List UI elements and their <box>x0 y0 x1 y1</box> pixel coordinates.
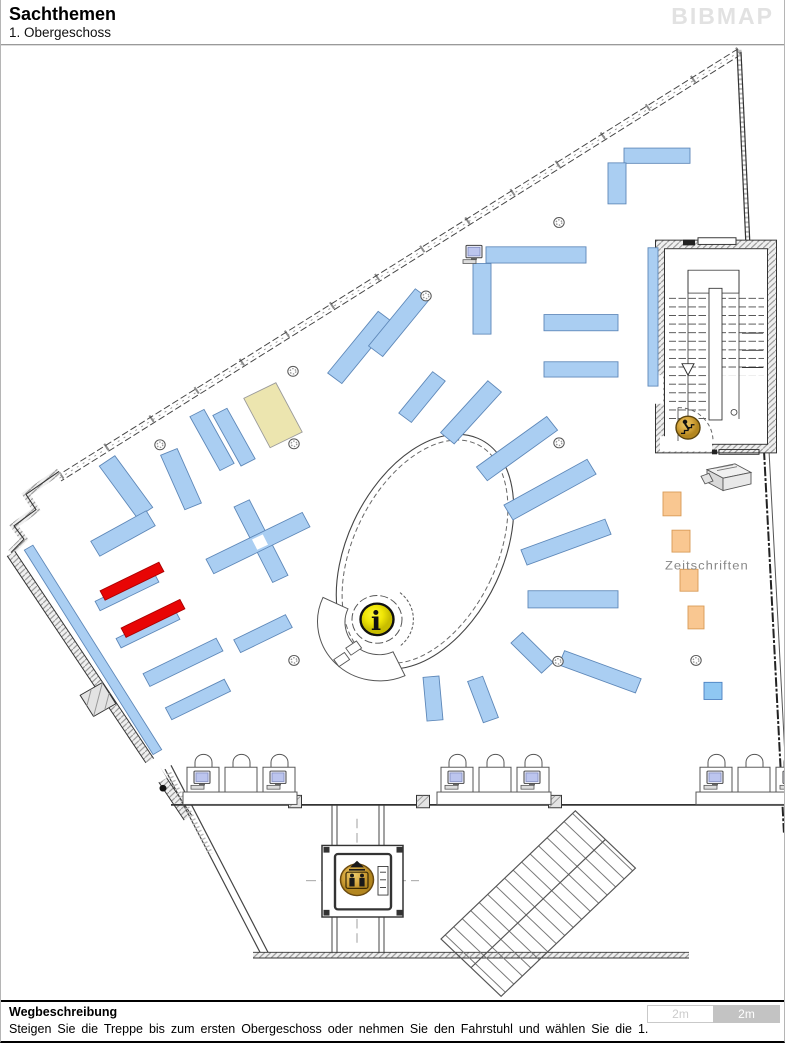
footer: Wegbeschreibung Steigen Sie die Treppe b… <box>1 1000 784 1043</box>
shelf[interactable] <box>559 651 641 693</box>
shelf[interactable] <box>521 519 611 565</box>
column <box>155 440 165 450</box>
floor-plan-map[interactable]: i <box>1 46 785 1000</box>
shelf[interactable] <box>399 372 445 423</box>
chair-icon <box>271 754 288 767</box>
column <box>554 218 564 228</box>
column <box>289 439 299 449</box>
shelf[interactable] <box>161 449 202 510</box>
desk <box>479 767 511 792</box>
chair-icon <box>525 754 542 767</box>
bibmap-logo: BIBMAP <box>671 3 774 30</box>
info-kiosk <box>318 593 414 681</box>
stairs-icon[interactable] <box>676 416 700 439</box>
shelf[interactable] <box>143 638 223 686</box>
chair-icon <box>487 754 504 767</box>
shelf[interactable] <box>244 383 302 448</box>
shelf[interactable] <box>468 676 499 722</box>
photocopier-icon <box>701 464 751 491</box>
computer-workstation[interactable] <box>183 754 297 804</box>
shelf[interactable] <box>544 362 618 377</box>
floor-plan-container[interactable]: i <box>1 46 785 1000</box>
chair-icon <box>708 754 725 767</box>
column <box>554 438 564 448</box>
shelf[interactable] <box>486 247 586 263</box>
shelf[interactable] <box>504 459 596 520</box>
floor-label: 1. Obergeschoss <box>9 25 111 40</box>
shelf[interactable] <box>672 530 690 552</box>
info-letter: i <box>371 606 381 636</box>
column <box>691 655 701 665</box>
zeitschriften-label: Zeitschriften <box>665 559 749 573</box>
shelf[interactable] <box>608 163 626 204</box>
shelf[interactable] <box>165 679 230 719</box>
shelf[interactable] <box>91 511 155 556</box>
info-icon[interactable]: i <box>361 604 394 637</box>
desk <box>225 767 257 792</box>
shelf[interactable] <box>234 615 292 653</box>
chair-icon <box>195 754 212 767</box>
shelf[interactable] <box>441 381 502 444</box>
stairwell <box>651 238 777 455</box>
computer-workstation[interactable] <box>696 754 785 804</box>
shelf[interactable] <box>624 148 690 163</box>
shelf[interactable] <box>473 264 491 335</box>
computer-workstation[interactable] <box>437 754 551 804</box>
header: Sachthemen 1. Obergeschoss <box>1 0 784 45</box>
shelf[interactable] <box>688 606 704 629</box>
shelf[interactable] <box>476 416 557 480</box>
shelf[interactable] <box>663 492 681 516</box>
directions-text: Steigen Sie die Treppe bis zum ersten Ob… <box>9 1022 648 1036</box>
column <box>421 291 431 301</box>
shelf[interactable] <box>511 632 553 673</box>
map-scale: 2m2m <box>647 1005 781 1023</box>
chair-icon <box>746 754 763 767</box>
diagonal-staircase <box>441 811 635 997</box>
chair-icon <box>233 754 250 767</box>
directions-heading: Wegbeschreibung <box>9 1005 117 1019</box>
shelf[interactable] <box>648 248 658 386</box>
column <box>553 656 563 666</box>
column <box>289 655 299 665</box>
shelf[interactable] <box>99 456 152 518</box>
shelf[interactable] <box>528 591 618 608</box>
bibmap-page: Sachthemen 1. Obergeschoss BIBMAP <box>0 0 785 1043</box>
scale-segment-dark: 2m <box>713 1005 780 1023</box>
shelf[interactable] <box>423 676 443 721</box>
page-title: Sachthemen <box>9 4 116 25</box>
chair-icon <box>449 754 466 767</box>
computer-icon <box>463 245 482 263</box>
shelf[interactable] <box>704 682 722 699</box>
column <box>288 366 298 376</box>
scale-segment-light: 2m <box>647 1005 714 1023</box>
desk <box>738 767 770 792</box>
shelf[interactable] <box>544 315 618 331</box>
